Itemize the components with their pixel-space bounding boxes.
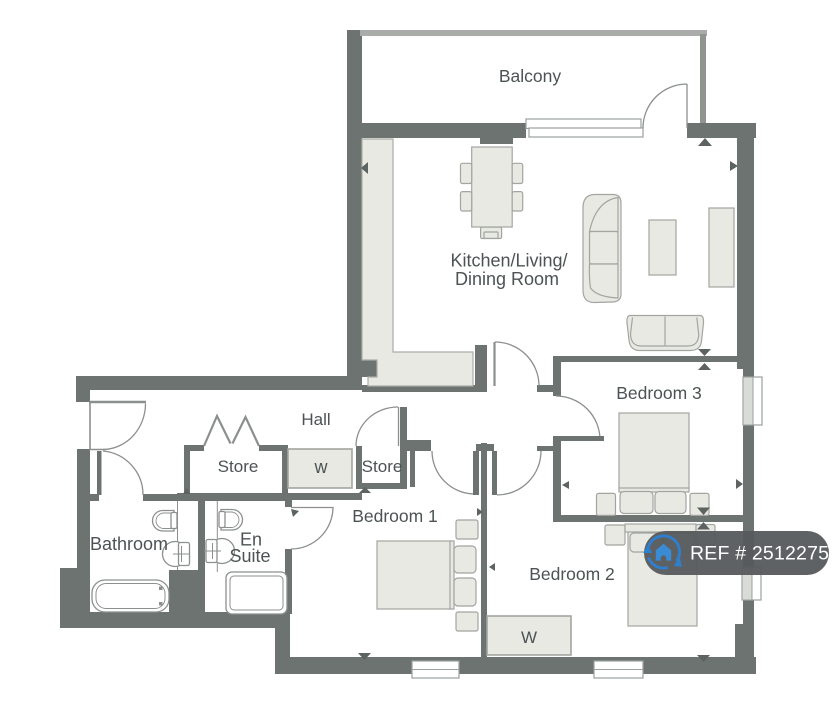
- svg-text:Store: Store: [218, 457, 259, 476]
- svg-text:w: w: [314, 457, 329, 477]
- svg-text:Balcony: Balcony: [499, 66, 562, 86]
- svg-text:Store: Store: [362, 457, 403, 476]
- svg-text:Hall: Hall: [301, 410, 330, 429]
- svg-text:Bedroom 2: Bedroom 2: [529, 564, 615, 584]
- svg-text:Dining Room: Dining Room: [455, 269, 559, 289]
- svg-text:Bedroom 1: Bedroom 1: [352, 506, 438, 526]
- svg-text:Kitchen/Living/: Kitchen/Living/: [450, 251, 567, 271]
- svg-text:Suite: Suite: [229, 546, 270, 566]
- svg-text:Bedroom 3: Bedroom 3: [616, 383, 702, 403]
- svg-text:REF # 2512275: REF # 2512275: [690, 543, 829, 565]
- svg-text:Bathroom: Bathroom: [90, 534, 168, 554]
- svg-text:W: W: [521, 628, 537, 647]
